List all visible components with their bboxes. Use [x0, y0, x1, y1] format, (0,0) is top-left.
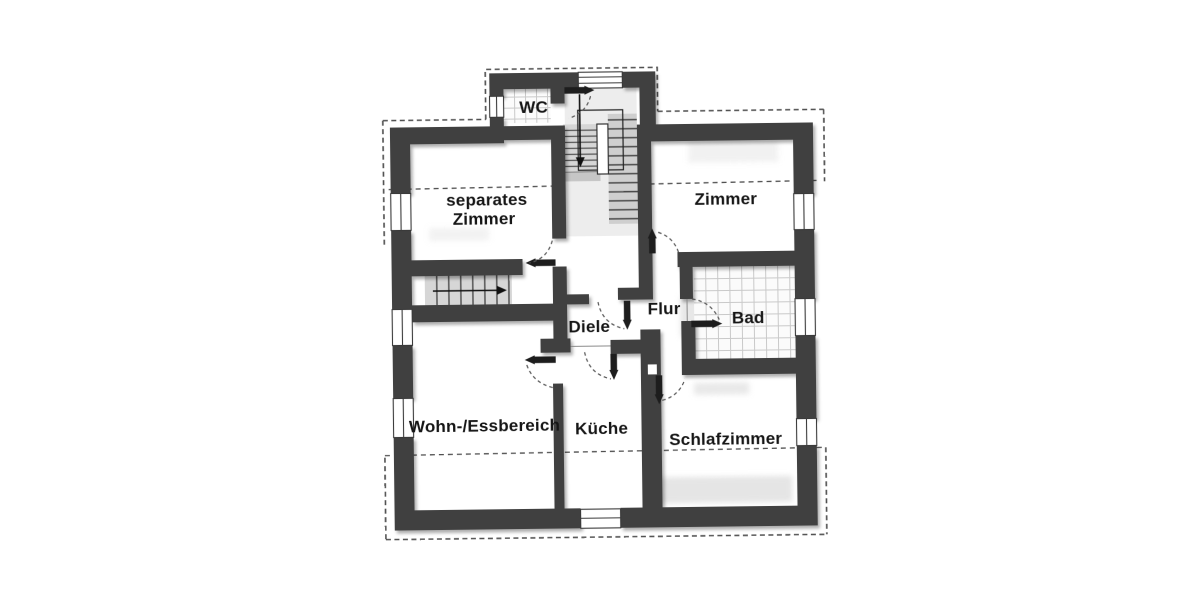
scan-smudge	[429, 227, 489, 241]
room-label-wohn-essbereich: Wohn-/Essbereich	[409, 416, 560, 437]
scan-smudge-ghost-text	[694, 382, 749, 395]
wall-kueche-west	[553, 384, 565, 509]
wall-right-1	[793, 122, 814, 193]
window-stairhall-north	[578, 72, 622, 89]
scanned-floor-plan-page: WC separates Zimmer Zimmer Diele Flur Ba…	[0, 0, 1200, 600]
window-kueche-south	[581, 509, 621, 528]
window-separates-zimmer-west	[391, 193, 411, 230]
roof-outline-bottom	[386, 534, 827, 539]
wall-diele-north-stub	[553, 294, 589, 304]
room-label-separates-zimmer-line1: separates	[446, 190, 527, 210]
window-wohnbereich-west-upper	[392, 309, 412, 345]
wall-small-stair-north	[412, 259, 523, 276]
room-label-schlafzimmer: Schlafzimmer	[669, 429, 782, 449]
door-wohn-essbereich	[525, 355, 556, 388]
room-label-kueche: Küche	[575, 419, 628, 439]
wall-bottom-east	[621, 505, 818, 527]
scan-smudge	[657, 476, 792, 504]
room-label-wc: WC	[519, 98, 548, 117]
duct-shaft-void	[648, 364, 657, 374]
door-kueche	[585, 352, 619, 380]
wall-protrusion-right	[639, 71, 656, 127]
roof-outline-top-right	[658, 109, 824, 111]
roof-outline-right-upper	[824, 109, 825, 181]
room-label-zimmer: Zimmer	[694, 189, 757, 209]
wall-kueche-east	[640, 329, 662, 507]
room-label-bad: Bad	[732, 308, 765, 327]
wall-top-east	[640, 122, 813, 141]
scan-smudge	[688, 140, 778, 163]
wall-small-stair-south	[412, 304, 560, 323]
wall-stair-west-upper	[551, 139, 566, 238]
window-zimmer-east	[794, 193, 814, 229]
wall-right-4	[797, 445, 818, 525]
window-wc-west	[490, 96, 504, 117]
wall-left-2	[391, 230, 412, 309]
wall-right-2	[794, 229, 815, 298]
wall-right-3	[795, 335, 816, 418]
window-schlafzimmer-east	[796, 418, 816, 445]
wall-left-1	[390, 127, 411, 193]
wall-bad-west-upper	[680, 261, 693, 299]
knee-line-lower	[385, 447, 824, 455]
door-separates-zimmer	[525, 241, 555, 268]
wall-diele-southwest	[540, 338, 570, 352]
wall-bottom-west	[395, 508, 581, 530]
room-label-flur: Flur	[648, 299, 681, 318]
stair-landing-step	[563, 172, 600, 181]
room-label-separates-zimmer-line2: Zimmer	[453, 209, 516, 229]
wall-kueche-north	[610, 340, 642, 354]
wall-zimmer-west	[637, 124, 653, 299]
roof-outline-left-lower	[385, 458, 386, 540]
wall-bad-south	[682, 358, 796, 375]
roof-outline-left-upper	[383, 121, 385, 247]
wall-under-wc	[492, 125, 565, 140]
wall-protrusion-left-upper	[489, 73, 503, 96]
window-bad-east	[795, 298, 815, 335]
room-label-diele: Diele	[568, 317, 610, 337]
wall-wc-east	[550, 83, 564, 103]
roof-outline-right-lower	[826, 447, 827, 534]
wall-left-3	[393, 345, 414, 398]
wall-zimmer-south	[677, 251, 796, 267]
wall-flur-hinge-stub	[618, 288, 640, 300]
door-zimmer	[648, 228, 679, 253]
roof-outline-top-left	[383, 119, 486, 120]
stair-handrail	[597, 124, 609, 174]
floor-plan-drawing: WC separates Zimmer Zimmer Diele Flur Ba…	[0, 0, 1200, 600]
door-schlafzimmer	[654, 375, 685, 404]
